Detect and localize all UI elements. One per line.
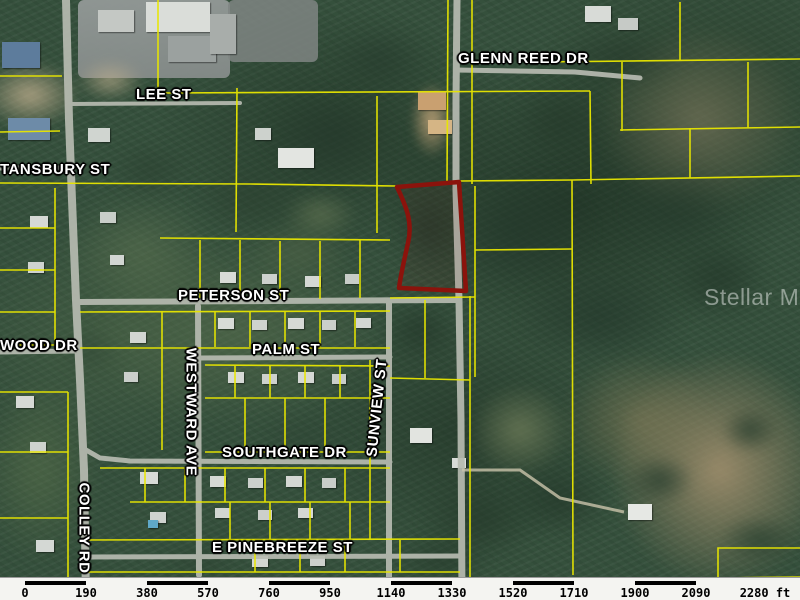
- street-label-palm-st: PALM ST: [252, 341, 320, 358]
- street-label-colley-rd: COLLEY RD: [76, 483, 93, 574]
- scale-tick: 0: [0, 586, 55, 600]
- parcel-line: [160, 238, 390, 240]
- scale-tick: 190: [56, 586, 116, 600]
- parcel-line: [718, 548, 800, 578]
- scale-bar-segment: [269, 581, 330, 585]
- scale-tick: 1900: [605, 586, 665, 600]
- stellar-mls-watermark: Stellar MLS: [704, 284, 800, 311]
- aerial-map[interactable]: GLENN REED DR LEE ST TANSBURY ST PETERSO…: [0, 0, 800, 600]
- scale-tick: 380: [117, 586, 177, 600]
- scale-bar-segment: [513, 581, 574, 585]
- parcel-line: [205, 365, 390, 366]
- street-label-peterson-st: PETERSON ST: [178, 287, 289, 304]
- parcel-line: [160, 91, 590, 93]
- scale-tick: 950: [300, 586, 360, 600]
- road: [456, 70, 640, 78]
- parcel-line: [459, 176, 800, 181]
- parcel-line: [572, 180, 573, 575]
- parcel-line: [0, 183, 396, 186]
- street-label-westward-ave: WESTWARD AVE: [183, 348, 200, 477]
- scale-tick: 1330: [422, 586, 482, 600]
- parcel-line: [80, 311, 390, 312]
- parcel-line: [475, 249, 572, 250]
- parcel-overlay: [0, 0, 800, 600]
- scale-bar-segment: [25, 581, 86, 585]
- scale-bar-segment: [147, 581, 208, 585]
- parcel-line: [447, 0, 448, 182]
- roads-layer: [0, 0, 640, 600]
- parcel-line: [0, 131, 60, 132]
- street-label-southgate-dr: SOUTHGATE DR: [222, 444, 347, 461]
- parcel-line: [236, 88, 237, 232]
- highlighted-parcel[interactable]: [397, 182, 466, 291]
- street-label-glenn-reed-dr: GLENN REED DR: [458, 50, 589, 67]
- scale-tick: 1140: [361, 586, 421, 600]
- scale-tick: 1520: [483, 586, 543, 600]
- street-label-lee-st: LEE ST: [136, 86, 192, 103]
- parcel-line: [620, 127, 800, 130]
- scale-bar: 0 190 380 570 760 950 1140 1330 1520 171…: [0, 577, 800, 600]
- street-label-wood-dr: WOOD DR: [0, 337, 78, 354]
- parcel-line: [590, 91, 591, 184]
- scale-tick: 2090: [666, 586, 726, 600]
- scale-tick: 2280 ft: [735, 586, 795, 600]
- scale-tick: 760: [239, 586, 299, 600]
- road: [84, 556, 460, 557]
- scale-tick: 1710: [544, 586, 604, 600]
- street-label-tansbury-st: TANSBURY ST: [0, 161, 110, 178]
- road: [70, 103, 240, 104]
- scale-tick: 570: [178, 586, 238, 600]
- scale-bar-segment: [635, 581, 696, 585]
- parcel-line: [390, 297, 475, 298]
- driveway: [462, 470, 624, 512]
- street-label-e-pinebreeze-st: E PINEBREEZE ST: [212, 539, 353, 556]
- scale-bar-segment: [391, 581, 452, 585]
